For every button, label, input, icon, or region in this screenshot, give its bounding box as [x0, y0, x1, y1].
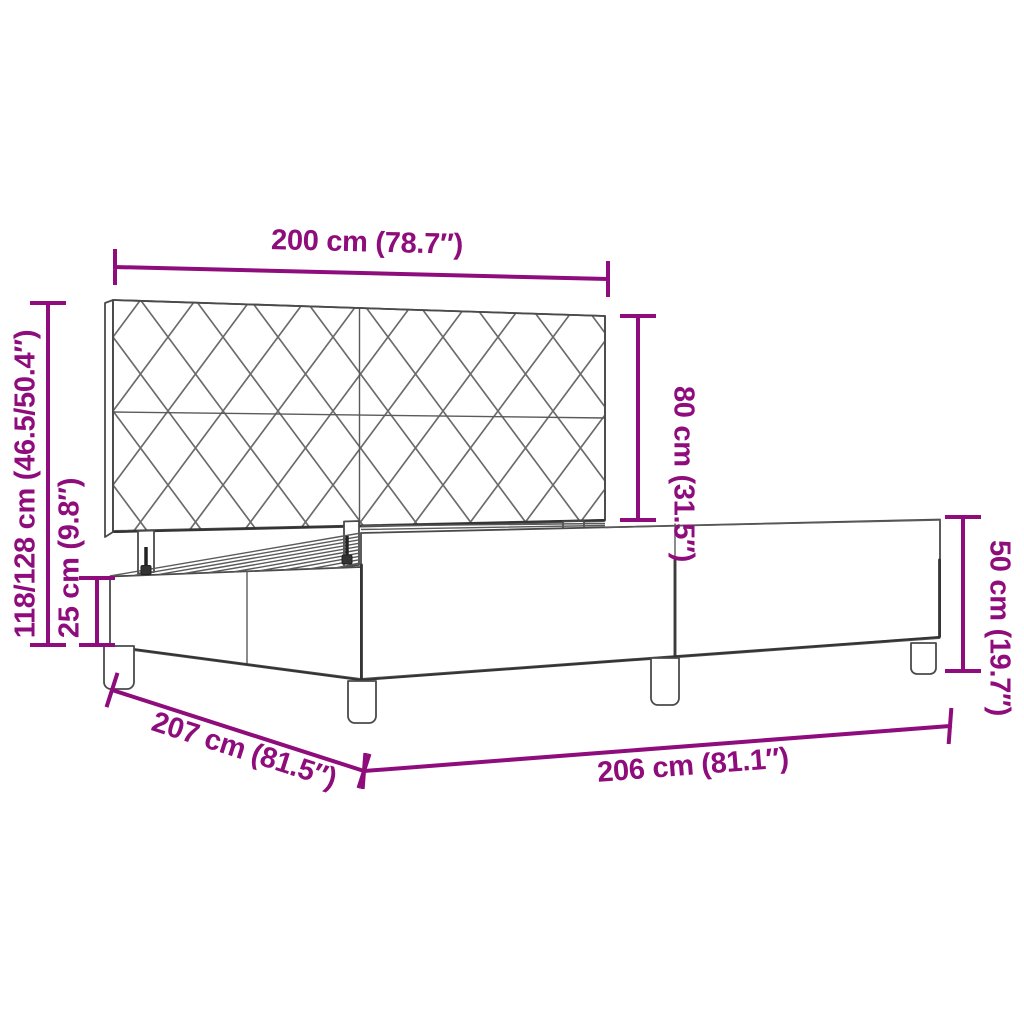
label-base-height: 25 cm (9.8″)	[54, 478, 87, 638]
label-headboard-height: 80 cm (31.5″)	[667, 386, 700, 562]
label-total-height: 118/128 cm (46.5/50.4″)	[10, 330, 43, 639]
headboard	[105, 300, 605, 537]
leg-front-right	[911, 643, 936, 674]
bed-frame-line-art	[0, 0, 1024, 1024]
label-side-rail-height: 50 cm (19.7″)	[983, 540, 1016, 716]
front-rail	[361, 520, 940, 681]
dim-headboard-height-line	[622, 316, 654, 520]
leg-head-left	[104, 646, 134, 689]
leg-front-corner	[348, 681, 376, 723]
leg-front-middle	[651, 658, 679, 705]
label-headboard-width: 200 cm (78.7″)	[271, 224, 464, 262]
dimension-diagram: 200 cm (78.7″) 80 cm (31.5″) 50 cm (19.7…	[0, 0, 1024, 1024]
side-rail-left	[110, 567, 361, 680]
dim-side-rail-height-line	[947, 517, 979, 671]
